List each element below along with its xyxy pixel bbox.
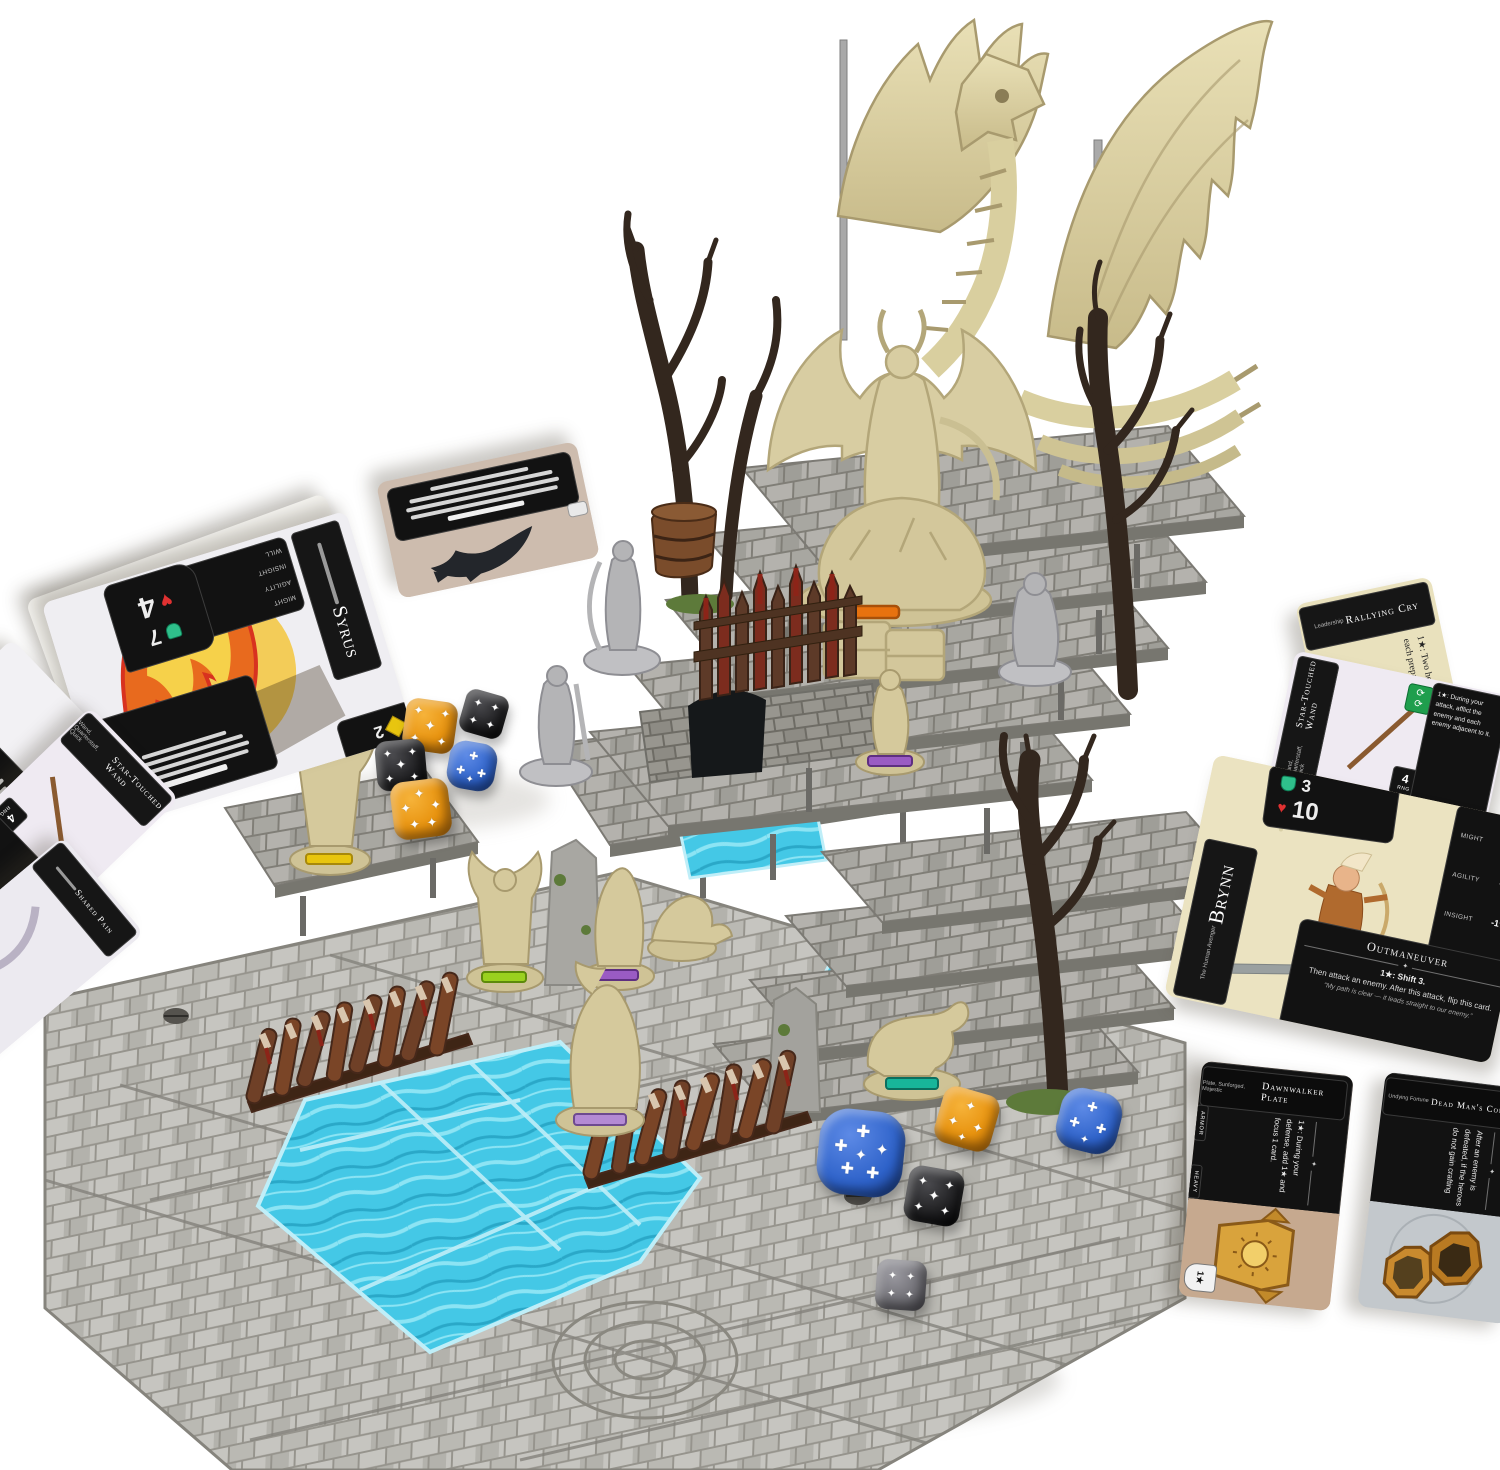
- star-pip: ✦: [1078, 1132, 1090, 1147]
- cross-pip: ✚: [840, 1158, 855, 1179]
- star-pip: ✦: [912, 1199, 924, 1215]
- star-pip: ✦: [413, 785, 426, 802]
- item-card-dawnwalker-plate: Dawnwalker Plate Plate, Sunforged, Majes…: [1178, 1061, 1354, 1312]
- star-pip: ✦: [399, 800, 412, 817]
- range-label: RNG: [1397, 784, 1411, 792]
- stat-value: -1★: [1490, 917, 1500, 931]
- star-pip: ✦: [874, 1139, 889, 1160]
- compass-title-band: Dead Man's Compass Undying Fortune: [1382, 1077, 1500, 1132]
- gem-icon: [164, 622, 183, 641]
- star-pip: ✦: [939, 1204, 951, 1220]
- cross-pip: ✚: [865, 1163, 880, 1184]
- card-title: Dawnwalker Plate: [1260, 1081, 1346, 1112]
- star-pip: ✦: [956, 1129, 968, 1144]
- star-pip: ✦: [489, 700, 501, 715]
- star-pip: ✦: [963, 1098, 978, 1116]
- shield-value: 1★: [1194, 1271, 1206, 1285]
- diamond-icon: ✦: [1402, 962, 1409, 971]
- stat-label: Might: [273, 593, 297, 606]
- card-subtitle: Leadership: [1314, 618, 1344, 630]
- gem-icon: [1280, 775, 1297, 792]
- brynn-heart-value: 10: [1290, 796, 1320, 827]
- dragon-right-wing: [1048, 21, 1272, 348]
- star-pip: ✦: [423, 717, 437, 735]
- ability-text: 1★: During your defense, add 1★ and focu…: [1269, 1117, 1307, 1193]
- black-star-die: ✦ ✦ ✦ ✦ ✦: [902, 1164, 967, 1229]
- star-pip: ✦: [408, 816, 421, 833]
- dragon-tail-coil: [1020, 380, 1235, 417]
- star-pip: ✦: [484, 717, 496, 732]
- star-pip: ✦: [426, 814, 439, 831]
- compass-art: [1357, 1201, 1500, 1324]
- card-title: Syrus: [327, 603, 365, 661]
- star-pip: ✦: [407, 745, 417, 759]
- star-pip: ✦: [886, 1287, 896, 1301]
- card-title: Dead Man's Compass: [1430, 1096, 1500, 1117]
- stat-label: Will: [264, 546, 282, 558]
- heart-icon: ♥: [1276, 799, 1287, 817]
- star-pip: ✦: [436, 734, 448, 749]
- stat-label: Might: [1460, 832, 1484, 844]
- shield-chip: 1★: [1183, 1262, 1218, 1293]
- cross-pip: ✚: [1067, 1113, 1081, 1131]
- star-pip: ✦: [382, 747, 392, 761]
- star-pip: ✦: [917, 1173, 929, 1189]
- gate-archway: [688, 690, 766, 778]
- card-subtitle: Undying Fortune: [1388, 1093, 1429, 1104]
- card-title: Brynn: [1203, 862, 1240, 927]
- stat-label: Agility: [1452, 871, 1481, 884]
- star-pip: ✦: [888, 1269, 898, 1283]
- ability-text: After an enemy is defeated, if the heroe…: [1444, 1127, 1485, 1207]
- star-pip: ✦: [429, 796, 442, 813]
- star-pip: ✦: [943, 1177, 955, 1193]
- diamond-icon: ✦: [1484, 1168, 1495, 1175]
- syrus-corner-value: 2: [371, 721, 386, 743]
- star-pip: ✦: [970, 1119, 985, 1137]
- star-pip: ✦: [927, 1187, 942, 1206]
- cross-pip: ✚: [1085, 1099, 1099, 1117]
- star-pip: ✦: [472, 696, 484, 711]
- blue-star-die: ✚ ✚ ✦ ✚ ✚ ✦: [814, 1106, 909, 1201]
- star-pip: ✦: [395, 757, 407, 774]
- star-pip: ✦: [467, 713, 479, 728]
- range-value: 4: [1401, 771, 1410, 786]
- stat-label: Insight: [257, 562, 287, 577]
- star-pip: ✦: [906, 1270, 916, 1284]
- cross-pip: ✚: [468, 749, 479, 763]
- cross-pip: ✚: [833, 1135, 848, 1156]
- diamond-icon: ✦: [1306, 1160, 1317, 1167]
- cross-pip: ✚: [1094, 1120, 1108, 1138]
- stat-label: Agility: [263, 578, 292, 593]
- board-game-product-photo: 2 Syrus Might+2★ Agility-1★ Insight-1★ W…: [0, 0, 1500, 1470]
- cross-pip: ✚: [476, 766, 487, 780]
- orange-star-die: ✦ ✦ ✦ ✦ ✦: [389, 777, 454, 842]
- heart-icon: ♥: [157, 587, 175, 612]
- cross-pip: ✚: [855, 1122, 871, 1143]
- armor-art: [1178, 1198, 1339, 1311]
- star-pip: ✦: [413, 703, 425, 718]
- star-pip: ✦: [904, 1288, 914, 1302]
- card-title: Star-Touched Wand: [1295, 658, 1329, 731]
- card-subtitle: Plate, Sunforged, Majestic: [1201, 1080, 1260, 1098]
- barrel: [652, 503, 716, 577]
- star-pip: ✦: [384, 772, 394, 786]
- syrus-gem-value: 7: [145, 623, 164, 651]
- dawnwalker-panel: Dawnwalker Plate Plate, Sunforged, Majes…: [1186, 1061, 1354, 1216]
- compass-panel: Dead Man's Compass Undying Fortune ✦ Aft…: [1368, 1072, 1500, 1221]
- gray-star-die: ✦ ✦ ✦ ✦: [874, 1258, 927, 1311]
- cross-pip: ✚: [455, 763, 466, 777]
- star-pip: ✦: [946, 1112, 961, 1130]
- reroll-icon: ⟳: [1413, 698, 1423, 711]
- star-pip: ✦: [854, 1145, 868, 1164]
- card-title: Rallying Cry: [1345, 599, 1421, 626]
- star-pip: ✦: [439, 707, 451, 722]
- star-pip: ✦: [464, 774, 474, 786]
- stat-label: Insight: [1443, 910, 1473, 923]
- card-subtitle: The Human Avenger: [1200, 925, 1217, 980]
- dawnwalker-title-band: Dawnwalker Plate Plate, Sunforged, Majes…: [1199, 1066, 1348, 1121]
- brynn-gem-value: 3: [1300, 776, 1312, 797]
- ability-text: 1★: During your attack, afflict the enem…: [1431, 691, 1491, 739]
- syrus-heart-value: 4: [134, 587, 160, 624]
